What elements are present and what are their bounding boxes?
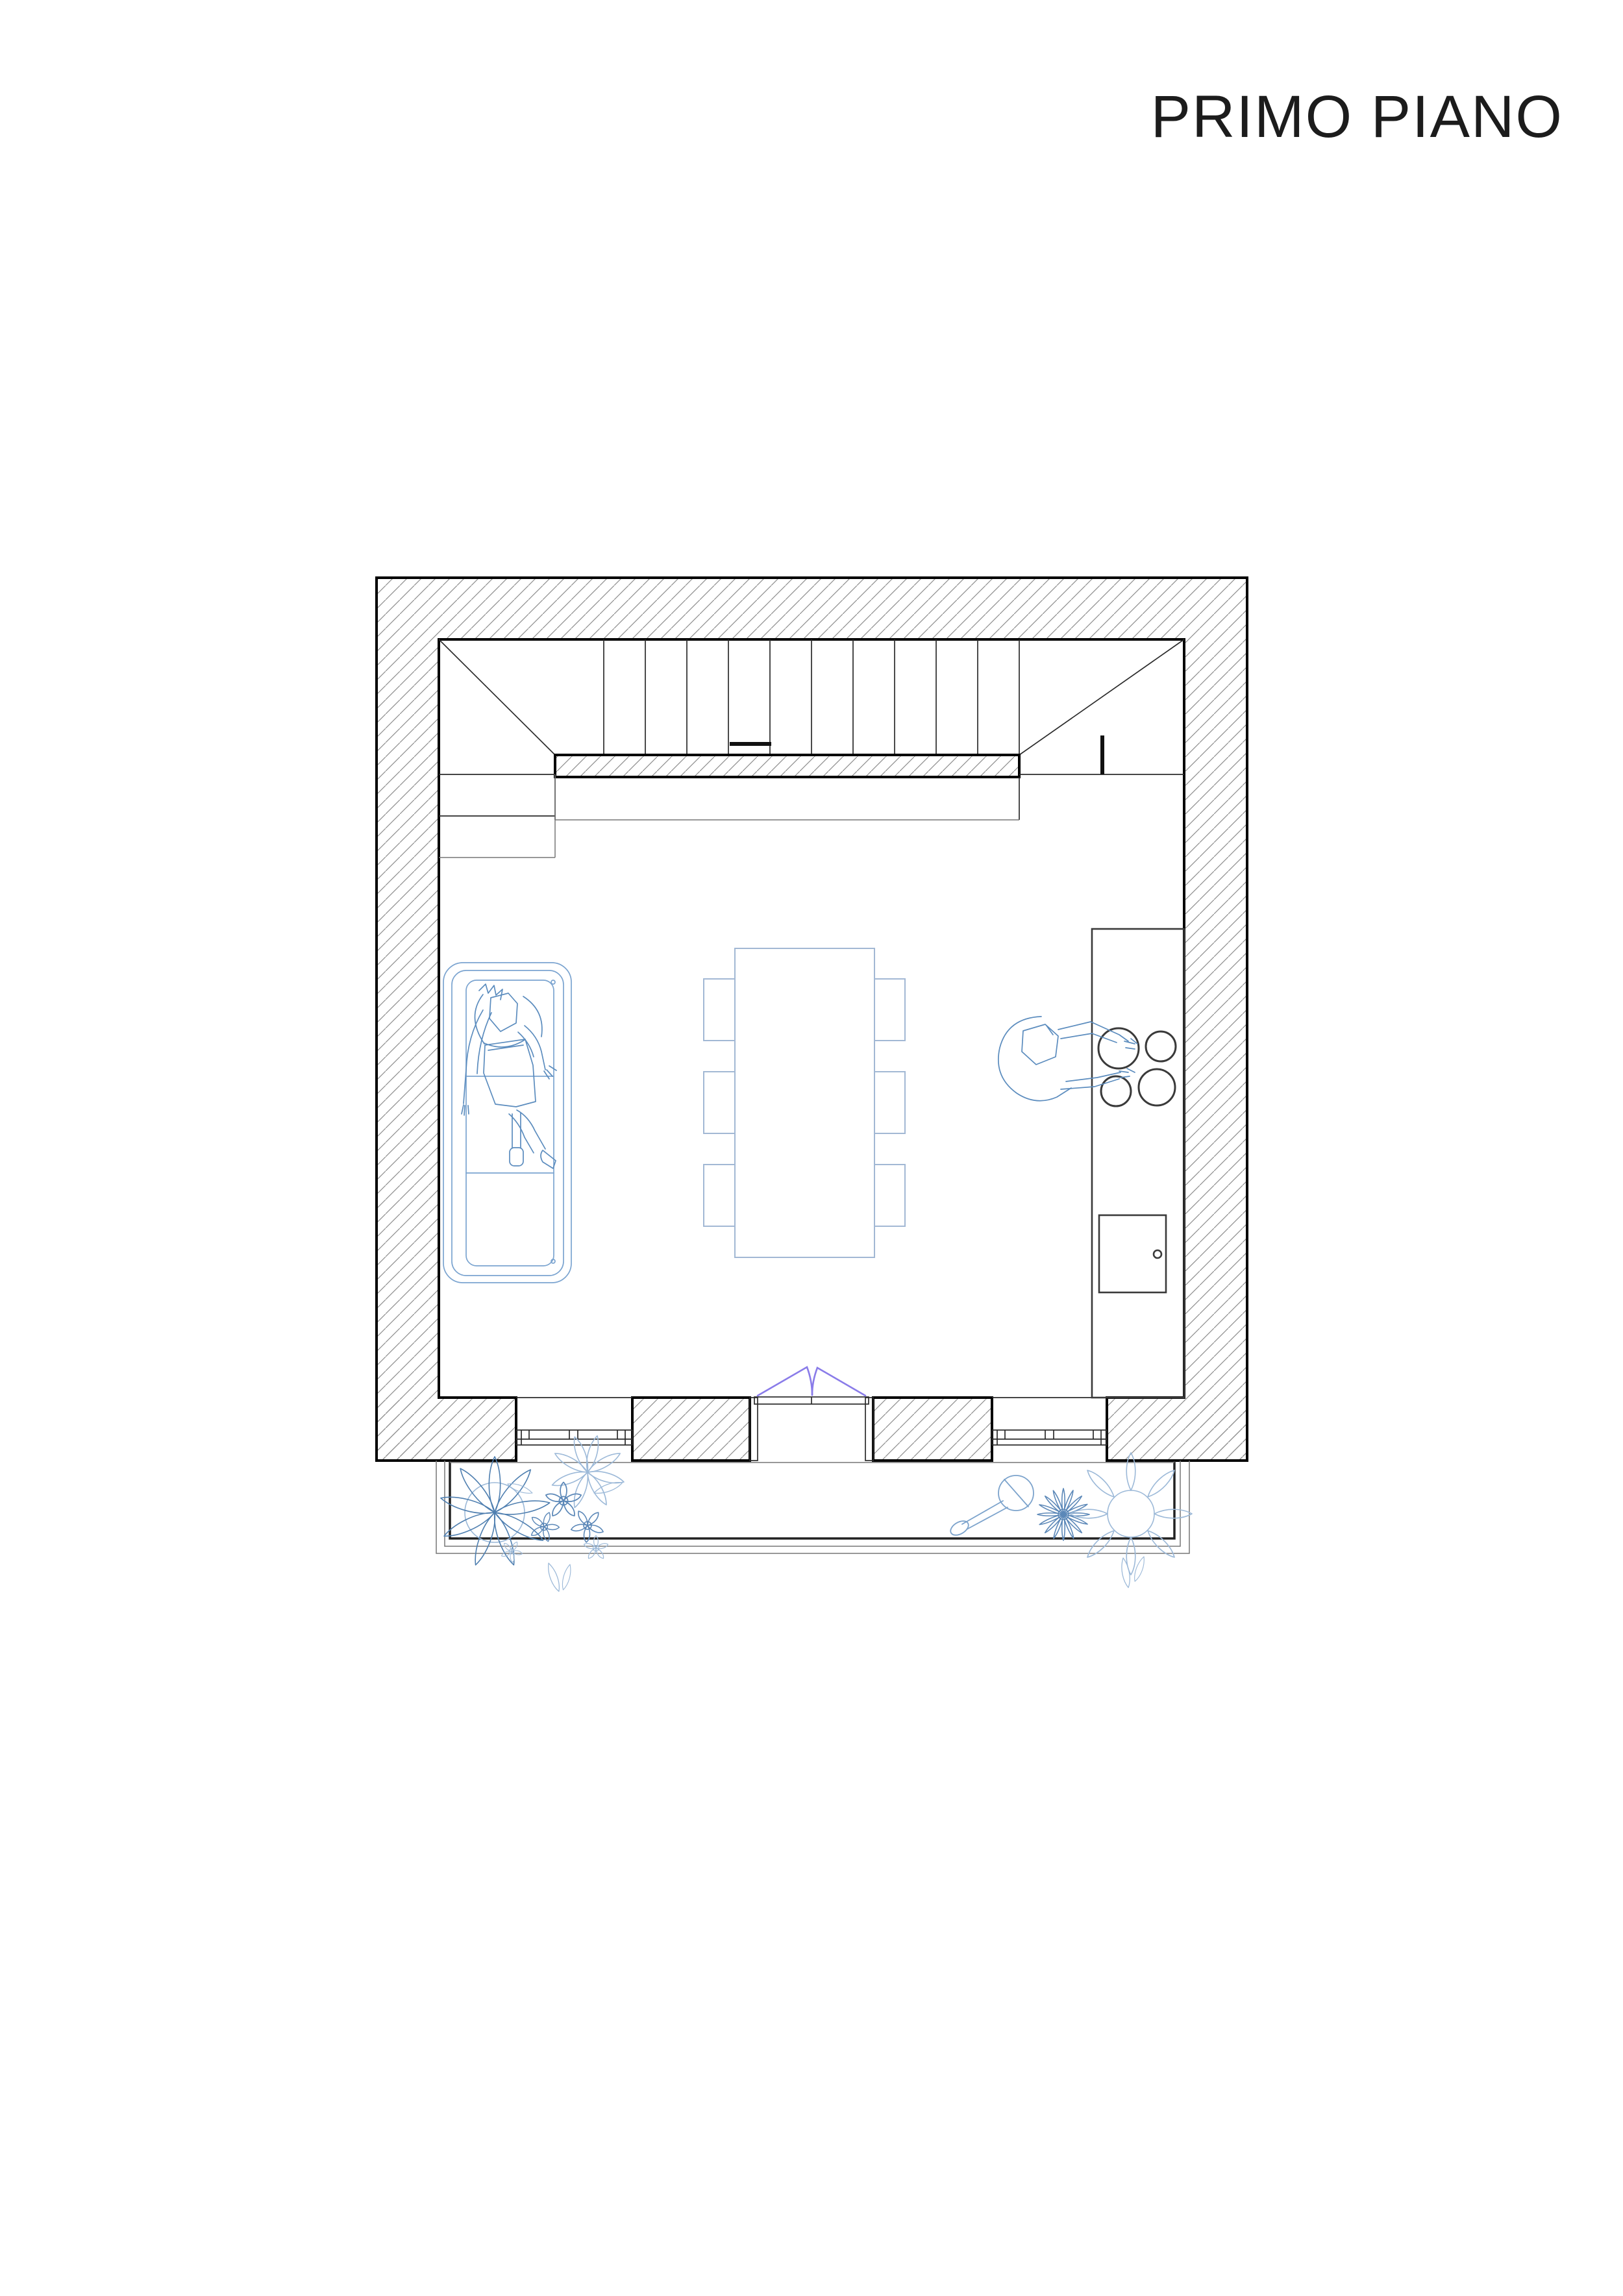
wall-pier-b — [632, 1398, 750, 1461]
dining-table-set — [704, 948, 905, 1257]
stair-winder-left — [439, 639, 555, 755]
person-lounging-head — [489, 993, 517, 1031]
plant-large — [440, 1457, 551, 1567]
wall-left — [377, 639, 439, 1461]
stair-treads — [604, 639, 1019, 755]
dining-chair — [704, 979, 735, 1041]
cooktop-burner — [1146, 1031, 1176, 1061]
dining-chair — [704, 1165, 735, 1226]
person-cooking-arm — [1058, 1022, 1128, 1041]
stair-landing-hatch — [555, 755, 1019, 777]
person-cooking-head — [1022, 1024, 1058, 1065]
cooktop-burner — [1139, 1069, 1175, 1105]
staircase — [439, 639, 1184, 858]
dining-table — [735, 948, 874, 1257]
wall-right — [1184, 639, 1247, 1461]
dining-chair — [704, 1072, 735, 1133]
sofa — [443, 963, 571, 1283]
kitchen-counter — [1092, 929, 1184, 1398]
wall-pier-c — [873, 1398, 992, 1461]
cooktop-burner — [1101, 1076, 1131, 1106]
watering-can — [948, 1475, 1034, 1538]
side-steps — [439, 774, 555, 858]
dining-chair — [874, 979, 905, 1041]
under-stair-shelf — [555, 777, 1019, 820]
door-swing-icon — [758, 1367, 865, 1396]
sink-drain — [1154, 1250, 1161, 1258]
flower-aster — [1037, 1488, 1089, 1540]
balcony-door — [750, 1367, 873, 1461]
dining-chair — [874, 1165, 905, 1226]
window-right — [992, 1430, 1107, 1445]
wall-pier-d — [1107, 1398, 1247, 1461]
dining-chair — [874, 1072, 905, 1133]
floor-plan-page: PRIMO PIANO — [0, 0, 1623, 2296]
wall-pier-a — [377, 1398, 516, 1461]
wall-top — [377, 578, 1247, 639]
kitchen-sink — [1099, 1215, 1166, 1292]
kitchen — [1092, 929, 1184, 1398]
floor-plan-drawing — [0, 0, 1623, 2296]
